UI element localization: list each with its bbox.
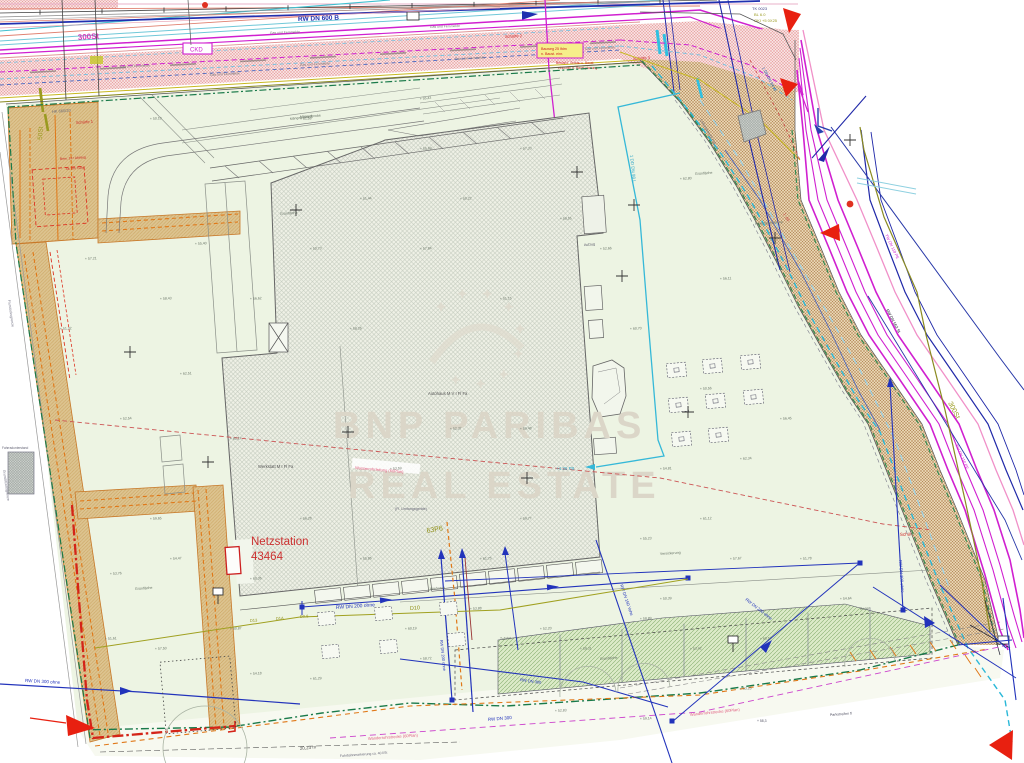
svg-text:Fahrradunterstand: Fahrradunterstand — [2, 446, 28, 450]
svg-text:Zufahrt: Zufahrt — [500, 636, 512, 641]
svg-text:Netzstation: Netzstation — [251, 536, 309, 548]
svg-text:+ 52,66: + 52,66 — [600, 246, 612, 251]
svg-text:+ 54,18: + 54,18 — [250, 671, 262, 676]
svg-text:+ 52,83: + 52,83 — [555, 708, 567, 713]
svg-text:+ 51,15: + 51,15 — [500, 296, 512, 301]
svg-text:+ 60,36: + 60,36 — [250, 576, 262, 581]
svg-text:+ 53,59: + 53,59 — [390, 466, 402, 471]
svg-text:+ 57,84: + 57,84 — [420, 246, 432, 251]
svg-text:+ 52,37: + 52,37 — [450, 426, 462, 431]
svg-text:(Fl. Umfangsgeräte): (Fl. Umfangsgeräte) — [395, 507, 427, 511]
svg-text:+ 60,70: + 60,70 — [630, 326, 642, 331]
svg-text:D13: D13 — [250, 617, 258, 623]
svg-text:+ 59,65: + 59,65 — [150, 516, 162, 521]
svg-text:+ 59,14: + 59,14 — [640, 716, 652, 721]
svg-text:Werkstatt M I Fl Fa: Werkstatt M I Fl Fa — [258, 464, 294, 469]
svg-text:+ 58,3: + 58,3 — [757, 719, 767, 723]
svg-text:+ 50,10: + 50,10 — [150, 116, 162, 121]
svg-text:D1A: D1A — [276, 615, 284, 621]
svg-text:+ 60,87: + 60,87 — [230, 626, 242, 631]
svg-text:50St: 50St — [37, 126, 45, 140]
svg-text:+ 54,64: + 54,64 — [840, 596, 852, 601]
svg-text:+ 62,34: + 62,34 — [740, 456, 752, 461]
svg-text:+ 61,12: + 61,12 — [700, 516, 712, 521]
svg-text:+ 52,20: + 52,20 — [540, 626, 552, 631]
svg-text:+ 58,72: + 58,72 — [420, 656, 432, 661]
svg-text:Autohaus M V I Fl Fa: Autohaus M V I Fl Fa — [428, 391, 468, 396]
svg-text:+ 59,31: + 59,31 — [580, 646, 592, 651]
svg-text:+ 57,21: + 57,21 — [85, 256, 97, 261]
svg-text:+ 50,73: + 50,73 — [310, 246, 322, 251]
svg-text:+ 53,76: + 53,76 — [110, 571, 122, 576]
svg-text:+ 59,48: + 59,48 — [520, 426, 532, 431]
svg-text:+ 50,39: + 50,39 — [660, 596, 672, 601]
svg-text:+ 56,11: + 56,11 — [720, 276, 732, 281]
svg-text:D0.8: D0.8 — [300, 613, 310, 619]
svg-text:+ 50,56: + 50,56 — [700, 386, 712, 391]
svg-text:+ 51,32: + 51,32 — [60, 326, 72, 331]
svg-text:+ 57,67: + 57,67 — [730, 556, 742, 561]
svg-text:+ 51,61: + 51,61 — [105, 636, 117, 641]
svg-text:+ 52,54: + 52,54 — [120, 416, 132, 421]
svg-text:D10: D10 — [410, 605, 420, 612]
svg-text:+ 58,89: + 58,89 — [640, 616, 652, 621]
svg-text:Rasen: Rasen — [860, 606, 871, 611]
svg-text:BL 6.0: BL 6.0 — [754, 12, 766, 17]
svg-text:+ 51,44: + 51,44 — [360, 196, 372, 201]
svg-text:n. Baust. einr.: n. Baust. einr. — [541, 52, 563, 56]
svg-text:+ 54,81: + 54,81 — [660, 466, 672, 471]
svg-text:Bauweg 25 lfdm: Bauweg 25 lfdm — [541, 47, 567, 51]
svg-text:+ 60,19: + 60,19 — [405, 626, 417, 631]
svg-text:+ 58,26: + 58,26 — [350, 326, 362, 331]
svg-text:+ 56,62: + 56,62 — [250, 296, 262, 301]
svg-text:+ 61,75: + 61,75 — [480, 556, 492, 561]
svg-text:TK 0023: TK 0023 — [752, 6, 768, 11]
svg-text:+ 56,28: + 56,28 — [300, 516, 312, 521]
svg-text:+ 51,78: + 51,78 — [800, 556, 812, 561]
svg-text:+ 55,69: + 55,69 — [420, 146, 432, 151]
svg-text:+ 62,17: + 62,17 — [230, 436, 242, 441]
svg-text:+ 50,22: + 50,22 — [460, 196, 472, 201]
svg-text:+ 53,88: + 53,88 — [470, 606, 482, 611]
svg-text:+ 62,51: + 62,51 — [180, 371, 192, 376]
svg-text:+4 36 FB: +4 36 FB — [556, 466, 574, 471]
svg-text:+ 58,55: + 58,55 — [560, 216, 572, 221]
svg-text:Schürfe 2: Schürfe 2 — [505, 33, 523, 39]
svg-text:+ 55,40: + 55,40 — [195, 241, 207, 246]
svg-text:Bestand: Verbau u. Baust: Bestand: Verbau u. Baust — [556, 61, 593, 65]
svg-text:+ 53,42: + 53,42 — [690, 646, 702, 651]
svg-text:CKD: CKD — [190, 48, 203, 54]
svg-text:+ 61,29: + 61,29 — [310, 676, 322, 681]
svg-text:+ 62,80: + 62,80 — [680, 176, 692, 181]
svg-text:+ 57,33: + 57,33 — [520, 146, 532, 151]
svg-text:+ 59,77: + 59,77 — [520, 516, 532, 521]
svg-text:+ 55,86: + 55,86 — [360, 556, 372, 561]
svg-text:+ 56,45: + 56,45 — [780, 416, 792, 421]
svg-text:Aufzug: Aufzug — [584, 242, 595, 247]
svg-text:+ 55,23: + 55,23 — [640, 536, 652, 541]
svg-text:BNP PARIBAS: BNP PARIBAS — [333, 405, 646, 447]
svg-text:+ 58,43: + 58,43 — [160, 296, 172, 301]
svg-text:+ 54,47: + 54,47 — [170, 556, 182, 561]
svg-text:43464: 43464 — [251, 551, 284, 563]
svg-text:+ 57,50: + 57,50 — [155, 646, 167, 651]
svg-text:+ 60,53: + 60,53 — [760, 636, 772, 641]
svg-text:+ 53,25: + 53,25 — [740, 686, 752, 691]
